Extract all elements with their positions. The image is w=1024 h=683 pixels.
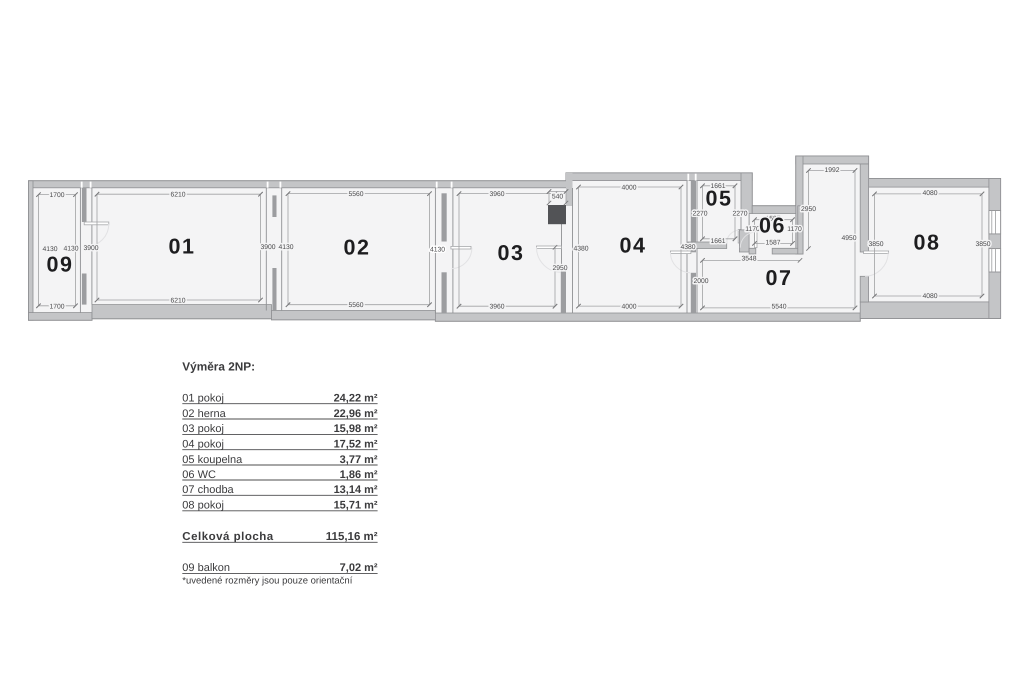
svg-text:4080: 4080	[922, 190, 937, 197]
svg-text:1,86 m²: 1,86 m²	[340, 469, 378, 481]
svg-text:Celková plocha: Celková plocha	[182, 531, 273, 543]
svg-text:1661: 1661	[710, 238, 725, 245]
svg-text:05 koupelna: 05 koupelna	[182, 454, 243, 466]
svg-text:24,22 m²: 24,22 m²	[334, 393, 378, 405]
svg-text:7,02 m²: 7,02 m²	[340, 562, 378, 574]
svg-text:115,16 m²: 115,16 m²	[326, 531, 378, 543]
svg-text:02: 02	[344, 236, 371, 260]
svg-text:05: 05	[706, 187, 733, 211]
svg-text:3850: 3850	[975, 241, 990, 248]
svg-text:4130: 4130	[278, 244, 293, 251]
svg-text:02 herna: 02 herna	[182, 408, 226, 420]
svg-text:6210: 6210	[170, 298, 185, 305]
svg-text:540: 540	[552, 194, 564, 201]
svg-text:3960: 3960	[489, 304, 504, 311]
svg-text:1700: 1700	[49, 303, 64, 310]
svg-text:4950: 4950	[841, 235, 856, 242]
svg-text:04: 04	[620, 234, 647, 258]
svg-text:4380: 4380	[680, 244, 695, 251]
svg-text:2270: 2270	[732, 210, 747, 217]
svg-text:3900: 3900	[260, 244, 275, 251]
svg-text:5560: 5560	[348, 302, 363, 309]
svg-text:4080: 4080	[922, 293, 937, 300]
svg-text:17,52 m²: 17,52 m²	[334, 439, 378, 451]
svg-text:2000: 2000	[693, 278, 708, 285]
svg-text:15,71 m²: 15,71 m²	[334, 500, 378, 512]
svg-text:1587: 1587	[765, 239, 780, 246]
svg-text:3,77 m²: 3,77 m²	[340, 454, 378, 466]
svg-text:01: 01	[169, 235, 196, 259]
svg-text:22,96 m²: 22,96 m²	[334, 408, 378, 420]
svg-text:08 pokoj: 08 pokoj	[182, 500, 224, 512]
svg-text:01 pokoj: 01 pokoj	[182, 393, 224, 405]
svg-text:08: 08	[914, 230, 941, 254]
svg-text:07: 07	[766, 266, 793, 290]
svg-text:3900: 3900	[83, 245, 98, 252]
svg-text:4380: 4380	[573, 245, 588, 252]
svg-text:04 pokoj: 04 pokoj	[182, 439, 224, 451]
svg-text:3548: 3548	[741, 255, 756, 262]
svg-text:1170: 1170	[745, 226, 760, 233]
svg-text:07 chodba: 07 chodba	[182, 484, 234, 496]
svg-text:Výměra 2NP:: Výměra 2NP:	[182, 359, 255, 373]
svg-text:3850: 3850	[868, 241, 883, 248]
svg-text:1700: 1700	[49, 192, 64, 199]
svg-text:1992: 1992	[824, 167, 839, 174]
svg-text:*uvedené rozměry jsou pouze or: *uvedené rozměry jsou pouze orientační	[182, 576, 352, 587]
svg-text:15,98 m²: 15,98 m²	[334, 423, 378, 435]
svg-text:1170: 1170	[787, 226, 802, 233]
svg-text:4130: 4130	[430, 247, 445, 254]
svg-text:2950: 2950	[552, 265, 567, 272]
svg-text:3960: 3960	[489, 191, 504, 198]
svg-text:06: 06	[759, 214, 786, 238]
svg-text:09 balkon: 09 balkon	[182, 562, 230, 574]
svg-text:2270: 2270	[692, 210, 707, 217]
svg-text:4000: 4000	[621, 185, 636, 192]
svg-text:13,14 m²: 13,14 m²	[334, 484, 378, 496]
svg-text:06 WC: 06 WC	[182, 469, 216, 481]
svg-text:03 pokoj: 03 pokoj	[182, 423, 224, 435]
svg-text:5540: 5540	[771, 303, 786, 310]
svg-text:09: 09	[47, 252, 74, 276]
svg-text:6210: 6210	[170, 192, 185, 199]
svg-text:5560: 5560	[348, 191, 363, 198]
svg-text:03: 03	[498, 241, 525, 265]
svg-text:2950: 2950	[801, 206, 816, 213]
svg-text:4000: 4000	[621, 304, 636, 311]
